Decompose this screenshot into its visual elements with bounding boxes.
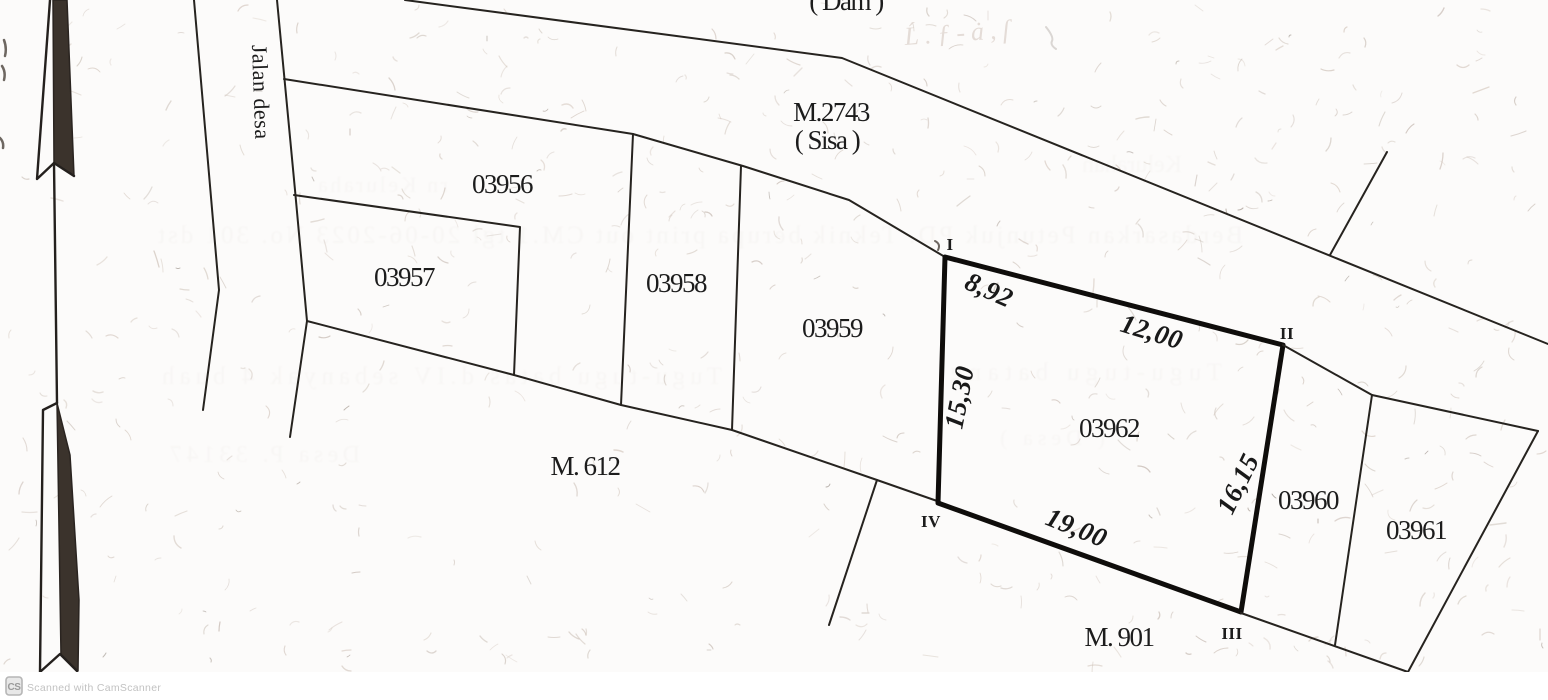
svg-text:03958: 03958	[646, 268, 707, 298]
svg-text:03957: 03957	[374, 262, 435, 292]
svg-text:03962: 03962	[1079, 413, 1140, 443]
svg-text:II: II	[1280, 324, 1294, 343]
svg-text:Berdasarkan Petunjuk PD. Tekni: Berdasarkan Petunjuk PD. Teknik berupa p…	[158, 222, 1243, 249]
svg-text:CS: CS	[8, 682, 22, 693]
svg-text:III: III	[1221, 624, 1242, 643]
svg-text:( Sisa ): ( Sisa )	[795, 125, 860, 155]
svg-text:03956: 03956	[472, 169, 533, 199]
svg-text:Jalan desa: Jalan desa	[247, 44, 275, 140]
svg-text:I: I	[946, 235, 953, 254]
svg-text:( Dam ): ( Dam )	[809, 0, 883, 16]
svg-text:03961: 03961	[1386, 515, 1446, 545]
svg-text:M. 901: M. 901	[1084, 622, 1153, 652]
svg-text:03960: 03960	[1278, 485, 1339, 515]
svg-text:Scanned with CamScanner: Scanned with CamScanner	[27, 682, 161, 694]
svg-text:Desa P. 33147: Desa P. 33147	[170, 442, 360, 468]
svg-text:03959: 03959	[802, 313, 863, 343]
svg-text:M. 612: M. 612	[550, 451, 620, 481]
svg-text:M.2743: M.2743	[793, 97, 870, 127]
svg-text:rn Keluraha: rn Keluraha	[318, 172, 448, 197]
svg-text:Kelurahan: Kelurahan	[1082, 152, 1182, 178]
svg-text:IV: IV	[921, 512, 941, 531]
